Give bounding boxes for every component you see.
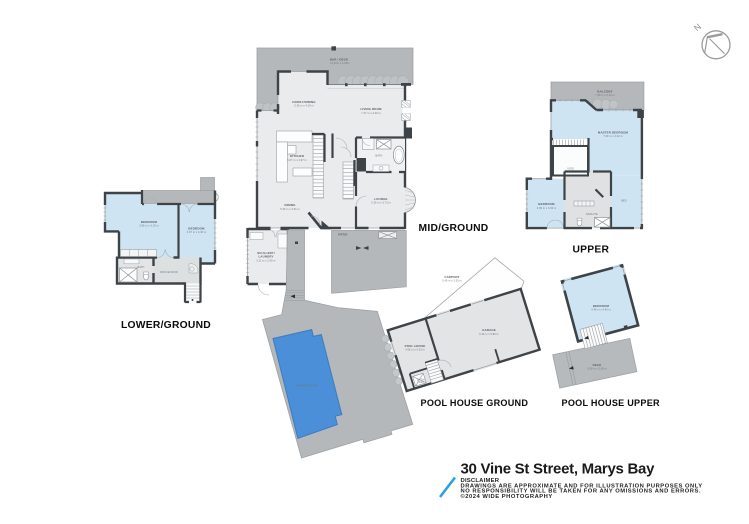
svg-text:LAUNDRY: LAUNDRY [258, 255, 273, 259]
svg-text:BATH: BATH [138, 266, 145, 269]
svg-text:BEDROOM: BEDROOM [593, 304, 610, 308]
svg-text:PATIO: PATIO [338, 233, 348, 237]
svg-text:3.11 m x 2.95 m: 3.11 m x 2.95 m [256, 259, 275, 262]
svg-text:LOWER/GROUND: LOWER/GROUND [121, 320, 211, 331]
svg-text:5.36 m x 4.19 m: 5.36 m x 4.19 m [294, 104, 313, 107]
svg-text:©2024 WIDE PHOTOGRAPHY: ©2024 WIDE PHOTOGRAPHY [461, 493, 553, 500]
svg-text:LDRY: LDRY [417, 381, 424, 384]
svg-text:7.59 m x 2.10 m: 7.59 m x 2.10 m [595, 94, 614, 97]
svg-text:MID/GROUND: MID/GROUND [419, 223, 489, 234]
svg-text:CARPORT: CARPORT [444, 275, 459, 279]
svg-text:POOL HOUSE: POOL HOUSE [405, 344, 426, 348]
svg-text:FAMILY/DINING: FAMILY/DINING [292, 100, 316, 104]
svg-text:BED: BED [621, 200, 627, 203]
svg-text:7.09 m x 4.22 m: 7.09 m x 4.22 m [603, 135, 622, 138]
svg-text:30 Vine St Street, Marys Bay: 30 Vine St Street, Marys Bay [461, 461, 656, 478]
svg-text:7.27 m x 4.49 m: 7.27 m x 4.49 m [361, 112, 380, 115]
svg-text:KITCHEN: KITCHEN [290, 154, 304, 158]
svg-text:MASTER BEDROOM: MASTER BEDROOM [598, 131, 629, 135]
svg-text:5.35 m x 3.73 m: 5.35 m x 3.73 m [371, 201, 390, 204]
svg-text:5.45 m x 3.30 m: 5.45 m x 3.30 m [442, 279, 461, 282]
svg-text:OFFICE NOOK: OFFICE NOOK [160, 271, 179, 274]
svg-text:3.06 m x 4.15 m: 3.06 m x 4.15 m [405, 348, 424, 351]
svg-text:VOID: VOID [567, 167, 574, 170]
svg-text:3.05 m x 3.30 m: 3.05 m x 3.30 m [537, 207, 556, 210]
svg-text:UPPER: UPPER [573, 244, 610, 255]
svg-text:LIVING ROOM: LIVING ROOM [360, 107, 382, 111]
svg-text:3.67 m x 4.30 m: 3.67 m x 4.30 m [187, 231, 206, 234]
svg-text:BALCONY: BALCONY [597, 90, 612, 94]
svg-text:GARAGE: GARAGE [482, 328, 496, 332]
svg-text:DINING: DINING [284, 203, 296, 207]
svg-text:BEDROOM: BEDROOM [188, 227, 205, 231]
svg-text:BEDROOM: BEDROOM [141, 220, 158, 224]
svg-text:POOL HOUSE UPPER: POOL HOUSE UPPER [562, 398, 661, 408]
svg-text:5.33 m x 3.91 m: 5.33 m x 3.91 m [280, 208, 299, 211]
svg-text:LOUNGE: LOUNGE [374, 197, 387, 201]
svg-text:12.52m x 4.95m: 12.52m x 4.95m [330, 62, 349, 65]
svg-text:BAR / DECK: BAR / DECK [330, 58, 349, 62]
svg-text:SWIMMING POOL: SWIMMING POOL [296, 385, 319, 388]
svg-text:POOL HOUSE GROUND: POOL HOUSE GROUND [421, 398, 529, 408]
svg-text:6.26 m x 5.86 m: 6.26 m x 5.86 m [479, 333, 498, 336]
svg-text:DECK: DECK [593, 363, 603, 367]
svg-text:5.07 m x 4.97 m: 5.07 m x 4.97 m [287, 159, 306, 162]
svg-text:ENSUITE: ENSUITE [586, 213, 598, 216]
svg-text:3.85 m x 3.10 m: 3.85 m x 3.10 m [139, 224, 158, 227]
svg-text:BATH: BATH [376, 154, 383, 157]
svg-text:5.08 m x 2.69 m: 5.08 m x 2.69 m [587, 367, 606, 370]
svg-text:4.46 m x 4.46 m: 4.46 m x 4.46 m [591, 308, 610, 311]
svg-text:BEDROOM: BEDROOM [538, 202, 555, 206]
